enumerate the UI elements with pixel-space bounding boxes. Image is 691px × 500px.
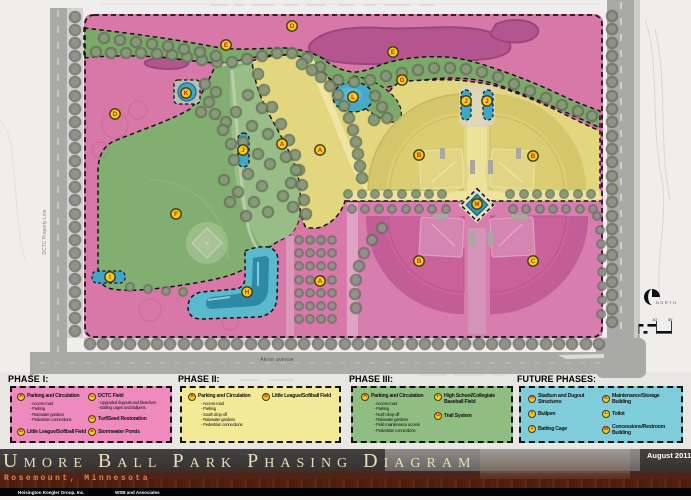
svg-text:80': 80' — [668, 318, 673, 322]
svg-text:B: B — [531, 153, 536, 160]
svg-text:L: L — [351, 94, 355, 101]
svg-text:B: B — [417, 152, 422, 159]
svg-text:J: J — [485, 98, 489, 105]
svg-text:D: D — [290, 23, 295, 30]
svg-text:M: M — [474, 201, 479, 208]
svg-text:E: E — [391, 49, 395, 56]
svg-text:I: I — [109, 274, 111, 281]
svg-text:B: B — [417, 258, 422, 265]
svg-text:Akron avenue: Akron avenue — [260, 357, 294, 363]
svg-text:J: J — [241, 147, 245, 154]
svg-text:A: A — [280, 141, 285, 148]
svg-text:A: A — [318, 278, 323, 285]
svg-text:J: J — [464, 98, 468, 105]
svg-text:F: F — [174, 211, 178, 218]
svg-text:C: C — [531, 258, 536, 265]
svg-text:H: H — [245, 289, 250, 296]
svg-text:G: G — [400, 77, 405, 84]
svg-text:A: A — [318, 147, 323, 154]
svg-text:40': 40' — [653, 318, 658, 322]
svg-text:E: E — [224, 42, 228, 49]
svg-text:K: K — [184, 90, 189, 97]
svg-text:NORTH: NORTH — [656, 301, 677, 305]
svg-text:0: 0 — [638, 335, 640, 339]
svg-text:DCTC Property Line: DCTC Property Line — [42, 209, 48, 254]
svg-text:D: D — [113, 111, 118, 118]
